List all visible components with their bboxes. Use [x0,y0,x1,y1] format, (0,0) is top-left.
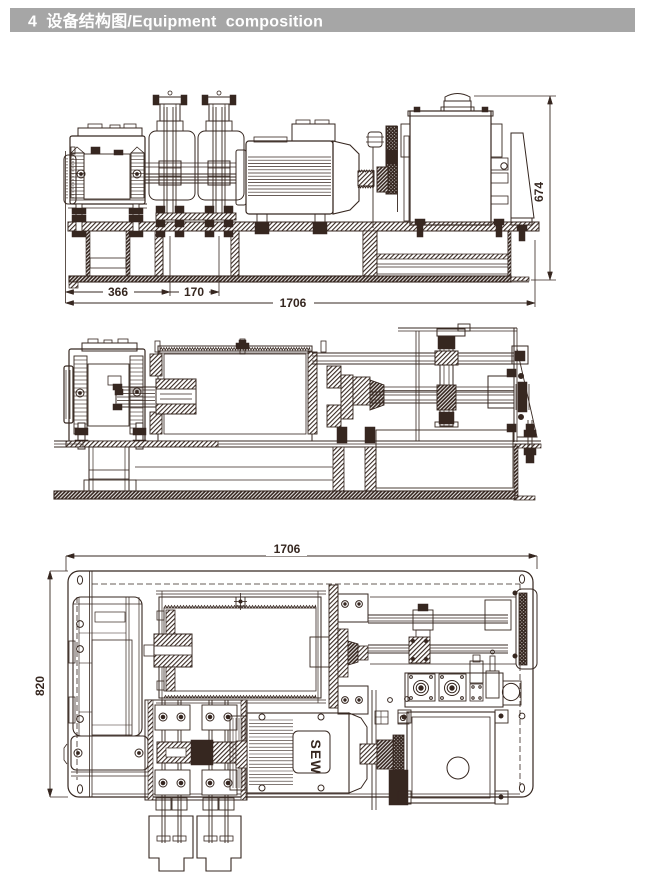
svg-text:1706: 1706 [280,296,307,310]
svg-text:4 设备结构图/Equipment compositio: 4 设备结构图/Equipment composition [28,12,323,31]
svg-text:1706: 1706 [274,542,301,556]
svg-text:674: 674 [532,182,546,202]
svg-text:170: 170 [184,285,204,299]
svg-text:366: 366 [108,285,128,299]
svg-text:820: 820 [33,676,47,696]
svg-text:SEW: SEW [308,740,324,775]
